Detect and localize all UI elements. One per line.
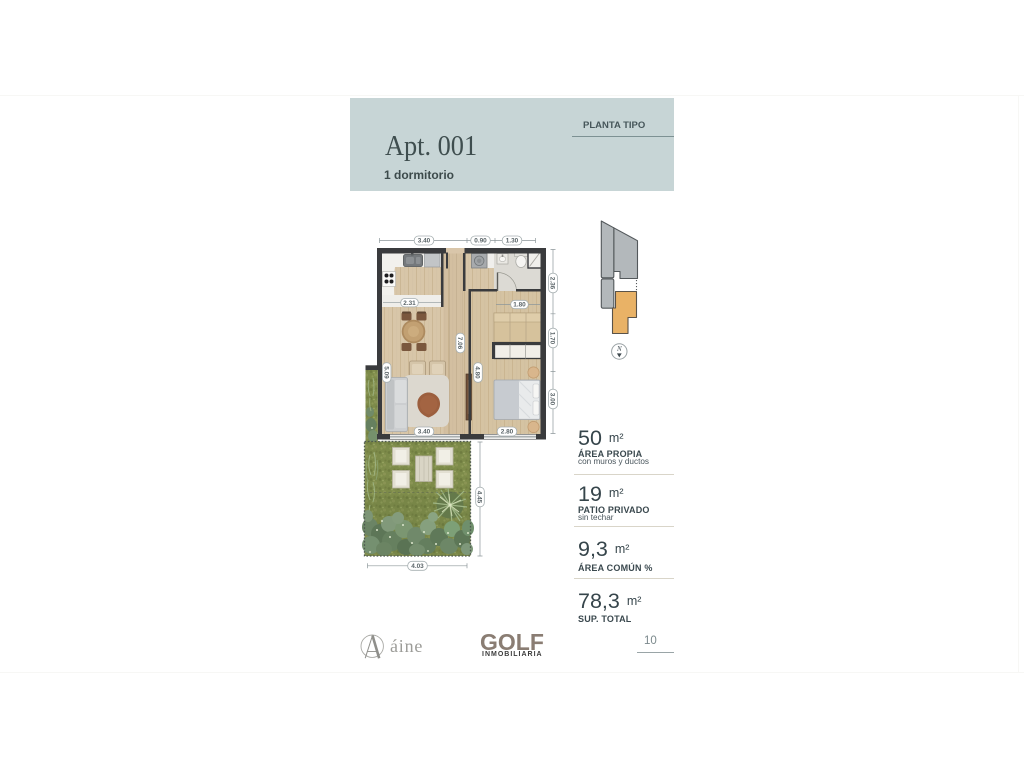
- svg-text:3.40: 3.40: [418, 238, 431, 245]
- svg-text:1.30: 1.30: [506, 238, 519, 245]
- svg-text:7.06: 7.06: [456, 337, 463, 350]
- svg-text:1.70: 1.70: [549, 332, 556, 345]
- svg-text:N: N: [616, 345, 622, 353]
- svg-text:3.00: 3.00: [549, 393, 556, 406]
- svg-text:4.45: 4.45: [476, 491, 483, 504]
- svg-text:1.80: 1.80: [513, 302, 526, 309]
- svg-text:2.36: 2.36: [549, 277, 556, 290]
- svg-text:5.09: 5.09: [382, 366, 389, 379]
- svg-text:2.31: 2.31: [403, 300, 416, 307]
- svg-text:0.90: 0.90: [474, 238, 487, 245]
- svg-text:4.80: 4.80: [474, 366, 481, 379]
- svg-text:4.03: 4.03: [411, 563, 424, 570]
- svg-text:2.80: 2.80: [501, 429, 514, 436]
- svg-text:3.40: 3.40: [418, 429, 431, 436]
